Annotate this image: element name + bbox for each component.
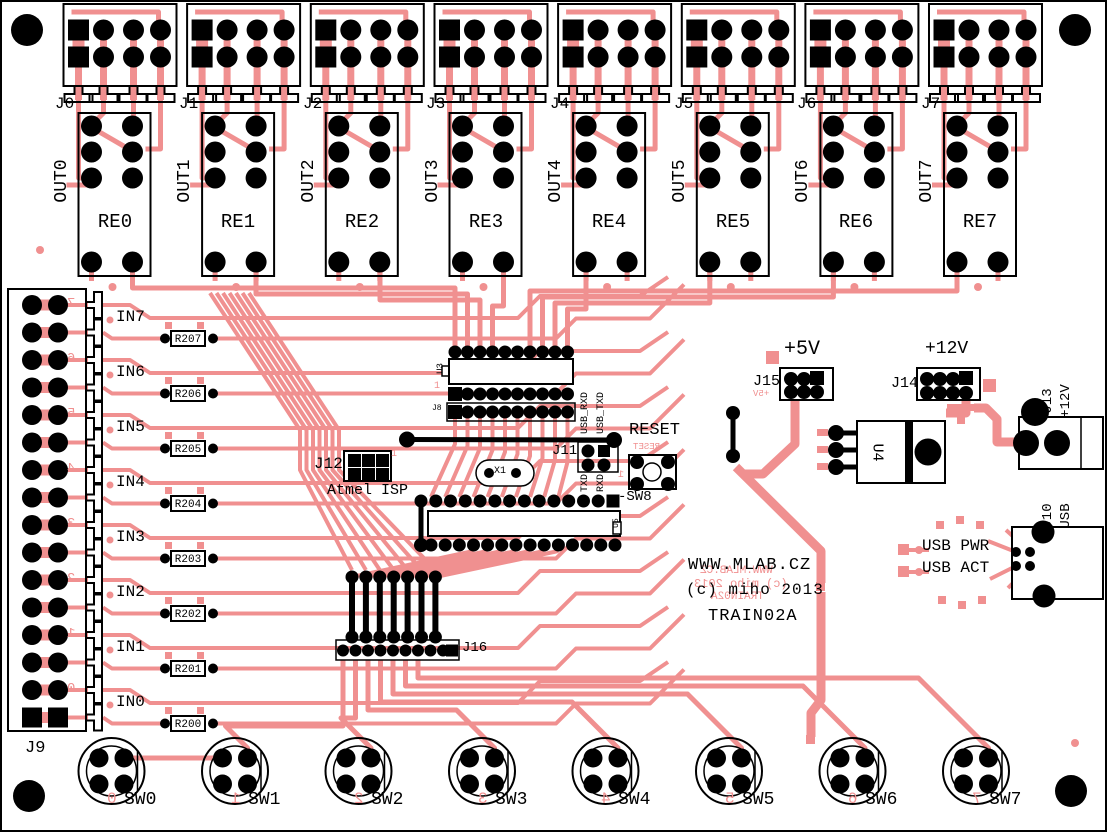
switch-number-mirror: 4	[601, 791, 611, 807]
switch-label: SW7	[989, 791, 1021, 809]
isp-caption: Atmel ISP	[327, 483, 408, 498]
switch-label: SW2	[371, 791, 403, 809]
input-pin-number-mirror: 5	[67, 407, 75, 421]
relay-label: RE0	[81, 213, 149, 232]
relay-label: RE1	[204, 213, 272, 232]
header-label-j14: J14	[891, 376, 918, 391]
switch-label: SW5	[742, 791, 774, 809]
switch-label: SW0	[124, 791, 156, 809]
plus5v-label-mirror: +5V	[753, 390, 769, 399]
switch-label: SW6	[865, 791, 897, 809]
resistor-label: R204	[171, 500, 205, 511]
out-label: OUT3	[424, 141, 442, 221]
out-label: OUT1	[176, 141, 194, 221]
crystal-label-x1: X1	[494, 467, 506, 477]
switch-number-mirror: 5	[725, 791, 735, 807]
signal-label-usb-txd: USB_TXD	[597, 381, 607, 445]
ic-label-u5: U5	[613, 507, 621, 539]
connector-label: J0	[55, 96, 74, 112]
input-label: IN1	[116, 639, 145, 655]
switch-number-mirror: 0	[107, 791, 117, 807]
switch-label: SW3	[495, 791, 527, 809]
out-label: OUT0	[53, 141, 71, 221]
signal-label-txd: TXD	[581, 463, 591, 503]
input-pin-number-mirror: 3	[67, 517, 75, 531]
input-pin-number-mirror: 0	[67, 682, 75, 696]
connector-label: J4	[550, 96, 569, 112]
connector-label: J3	[426, 96, 445, 112]
pin1-marker: 1	[434, 382, 440, 392]
header-label-j12: J12	[314, 456, 343, 472]
input-label: IN6	[116, 364, 145, 380]
connector-label-j10: J10	[1041, 485, 1055, 547]
switch-label: SW4	[618, 791, 650, 809]
connector-label-j13: J13	[1041, 370, 1055, 432]
switch-number-mirror: 2	[354, 791, 364, 807]
reset-caption-mirror: RESET	[633, 443, 660, 452]
reset-caption: RESET	[629, 422, 680, 439]
connector-label: J2	[303, 96, 322, 112]
board-url: WWW.MLAB.CZ	[688, 557, 811, 574]
pcb-artwork	[0, 0, 1107, 832]
switch-label: SW1	[248, 791, 280, 809]
input-pin-number-mirror: 4	[67, 462, 75, 476]
relay-label: RE6	[822, 213, 890, 232]
out-label: OUT6	[794, 141, 812, 221]
board-name: TRAIN02A	[708, 608, 798, 625]
header-label-j11: J11	[552, 444, 577, 458]
input-connector-label: J9	[25, 740, 45, 757]
out-label: OUT7	[918, 141, 936, 221]
plus12v-label: +12V	[925, 340, 968, 358]
input-label: IN2	[116, 584, 145, 600]
resistor-label: R205	[171, 445, 205, 456]
connector-label: J1	[179, 96, 198, 112]
usb-act-label: USB ACT	[922, 560, 989, 576]
connector-label: J7	[921, 96, 940, 112]
relay-label: RE5	[699, 213, 767, 232]
out-label: OUT5	[671, 141, 689, 221]
j13-voltage-label: +12V	[1059, 370, 1073, 432]
header-label-j16: J16	[462, 641, 487, 655]
input-label: IN0	[116, 694, 145, 710]
input-label: IN3	[116, 529, 145, 545]
signal-label-usb-rxd: USB_RXD	[581, 381, 591, 445]
pin1-marker: 1	[391, 450, 397, 460]
pcb-board-train02a: J0 J1 J2 J3 J4 J5 J6 J7 OUT0 OUT1 OUT2 O…	[0, 0, 1107, 832]
j10-usb-label: USB	[1059, 485, 1073, 547]
switch-number-mirror: 1	[231, 791, 241, 807]
input-pin-number-mirror: 1	[67, 627, 75, 641]
resistor-label: R200	[171, 720, 205, 731]
relay-label: RE4	[575, 213, 643, 232]
resistor-label: R201	[171, 665, 205, 676]
relay-label: RE7	[946, 213, 1014, 232]
board-copyright: (c) miho 2013	[686, 582, 824, 598]
input-pin-number-mirror: 7	[67, 297, 75, 311]
connector-label: J5	[674, 96, 693, 112]
switch-number-mirror: 3	[478, 791, 488, 807]
resistor-label: R206	[171, 390, 205, 401]
out-label: OUT2	[300, 141, 318, 221]
header-label-j15: J15	[753, 374, 780, 389]
relay-label: RE3	[452, 213, 520, 232]
switch-number-mirror: 7	[972, 791, 982, 807]
input-pin-number-mirror: 6	[67, 352, 75, 366]
switch-number-mirror: 6	[848, 791, 858, 807]
regulator-label-u4: U4	[870, 431, 885, 475]
input-pin-number-mirror: 2	[67, 572, 75, 586]
out-label: OUT4	[547, 141, 565, 221]
header-label-j8: J8	[432, 405, 442, 413]
connector-label: J6	[797, 96, 816, 112]
reset-switch-label: -SW8	[618, 490, 652, 504]
input-label: IN4	[116, 474, 145, 490]
pin1-marker-mirror: 1	[618, 471, 624, 481]
signal-label-rxd: RXD	[597, 463, 607, 503]
resistor-label: R203	[171, 555, 205, 566]
plus5v-label: +5V	[784, 340, 820, 360]
input-label: IN7	[116, 309, 145, 325]
resistor-label: R202	[171, 610, 205, 621]
resistor-label: R207	[171, 335, 205, 346]
relay-label: RE2	[328, 213, 396, 232]
input-label: IN5	[116, 419, 145, 435]
usb-pwr-label: USB PWR	[922, 538, 989, 554]
